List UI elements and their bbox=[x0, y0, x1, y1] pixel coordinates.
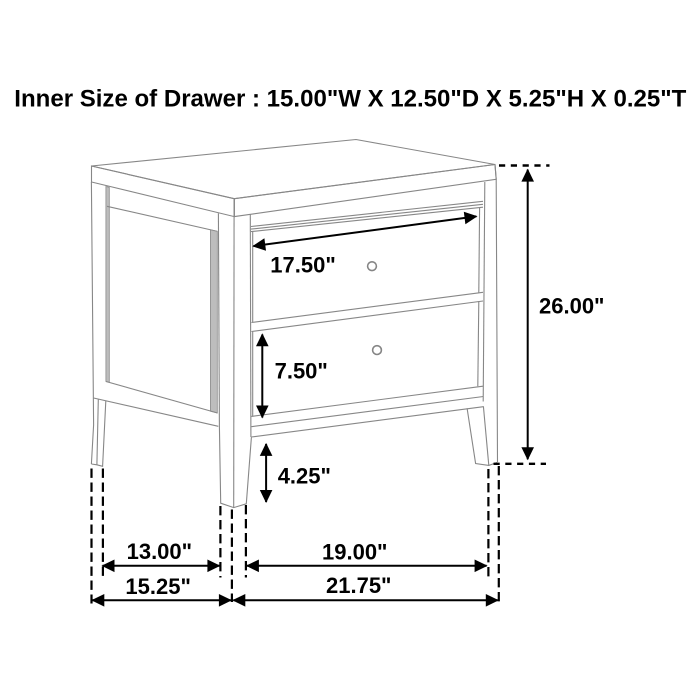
svg-text:7.50": 7.50" bbox=[275, 359, 328, 384]
svg-text:Inner Size of Drawer : 15.00"W: Inner Size of Drawer : 15.00"W X 12.50"D… bbox=[14, 86, 686, 113]
svg-text:19.00": 19.00" bbox=[322, 540, 387, 565]
svg-text:4.25": 4.25" bbox=[278, 464, 331, 489]
svg-text:15.25": 15.25" bbox=[125, 574, 190, 599]
svg-text:13.00": 13.00" bbox=[127, 539, 192, 564]
svg-text:21.75": 21.75" bbox=[326, 573, 391, 598]
svg-text:26.00": 26.00" bbox=[539, 294, 604, 319]
svg-text:17.50": 17.50" bbox=[270, 253, 335, 278]
